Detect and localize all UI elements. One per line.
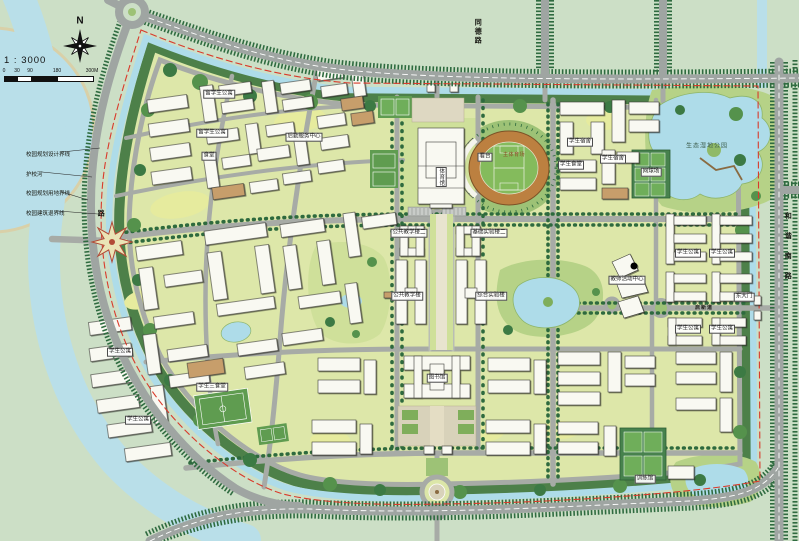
building-gymnasium [418,128,464,208]
scale-tick: 0 [3,68,6,74]
scale-tick: 90 [27,68,33,74]
legend-item: 校园规划设计界线 [26,150,70,158]
legend-item: 校园建筑退界线 [26,209,65,217]
boundary-legend: 校园规划设计界线护校河校园规划用地界线校园建筑退界线 [26,150,106,220]
scale-tick: 30 [14,68,20,74]
scale-tick: 300M [86,68,99,74]
compass-north-letter: N [76,16,83,27]
training-courts-se [620,428,666,480]
campus-map-illustration [0,0,799,541]
scale-bar: 1 : 3000 03090180300M [4,55,104,82]
legend-item: 校园规划用地界线 [26,189,70,197]
scale-tick-row: 03090180300M [4,68,104,75]
scale-ratio-text: 1 : 3000 [4,55,104,66]
west-gate-star-plaza [92,222,132,262]
legend-item: 护校河 [26,170,43,178]
building-library [404,356,470,398]
scale-tick: 180 [53,68,61,74]
scale-bar-segments [4,76,94,82]
campus-master-plan: N 1 : 3000 03090180300M 校园规划设计界线护校河校园规划用… [0,0,799,541]
